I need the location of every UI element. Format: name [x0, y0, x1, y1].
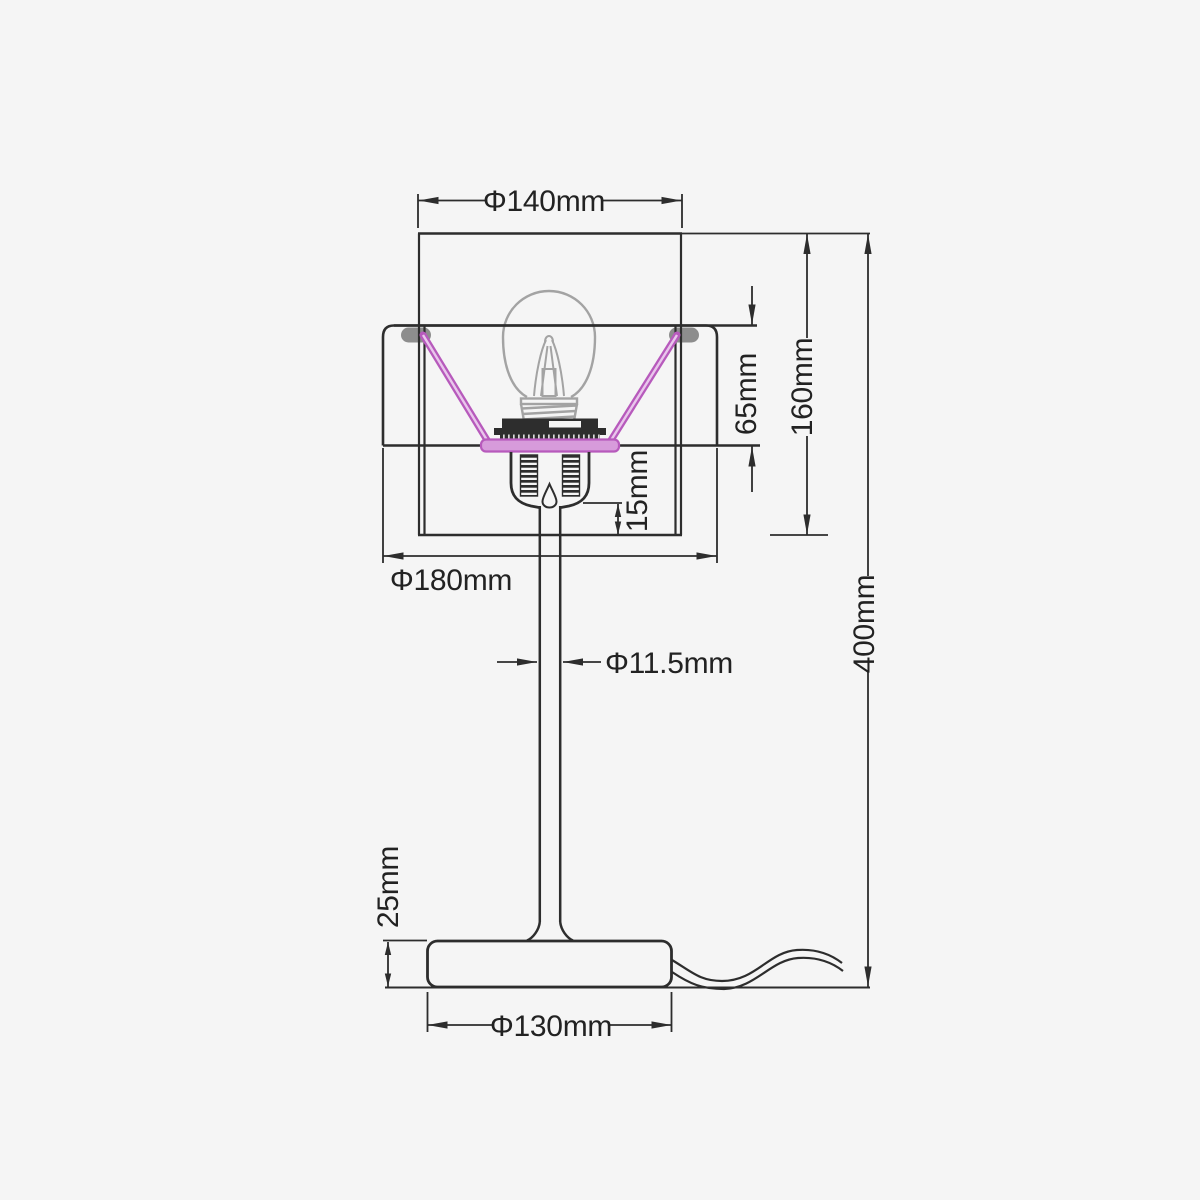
label-shade-bottom-diameter: Φ180mm: [390, 564, 512, 597]
label-stem-diameter: Φ11.5mm: [605, 647, 733, 680]
lamp-dimension-diagram: Φ140mm 160mm 65mm 15mm Φ180mm Φ11.5mm 40…: [0, 0, 1200, 1200]
collar-flange: [494, 428, 606, 435]
collar-slot: [549, 421, 581, 428]
dim-shade-bottom-diameter: [383, 448, 717, 563]
cup-thread-left: [521, 455, 538, 496]
dimensions: [383, 194, 868, 1032]
shade-clips: [401, 328, 699, 343]
cup-teardrop: [543, 484, 557, 508]
support-wire-right-highlight: [608, 335, 677, 445]
socket-cup: [511, 452, 589, 508]
label-base-height: 25mm: [372, 846, 405, 928]
dim180-ext-lines: [383, 448, 717, 563]
light-bulb: [503, 291, 595, 425]
label-shade-inset: 65mm: [730, 353, 763, 435]
diagram-svg: Φ140mm 160mm 65mm 15mm Φ180mm Φ11.5mm 40…: [0, 0, 1200, 1200]
inner-shade-left-wall: [419, 234, 425, 536]
support-ring: [481, 440, 619, 452]
stem: [527, 506, 573, 941]
support-wire-left-highlight: [423, 335, 490, 445]
dim-base-height: [383, 941, 427, 987]
label-socket-clearance: 15mm: [621, 450, 654, 532]
label-base-diameter: Φ130mm: [490, 1010, 612, 1043]
label-shade-top-diameter: Φ140mm: [483, 185, 605, 218]
dim-socket-clearance: [583, 503, 622, 535]
label-shade-height: 160mm: [786, 338, 819, 437]
dimension-labels: Φ140mm 160mm 65mm 15mm Φ180mm Φ11.5mm 40…: [372, 185, 881, 1043]
bulb-filament: [534, 336, 564, 396]
label-total-height: 400mm: [848, 575, 881, 674]
power-cable-bottom: [672, 958, 843, 989]
bulb-globe: [503, 291, 595, 397]
lamp-base: [385, 941, 870, 989]
stem-base-mound: [527, 922, 573, 941]
inner-shade-right-wall: [676, 234, 682, 536]
bulb-neck-lip: [521, 399, 577, 405]
cup-thread-right: [563, 455, 580, 496]
base-outline: [428, 941, 672, 987]
